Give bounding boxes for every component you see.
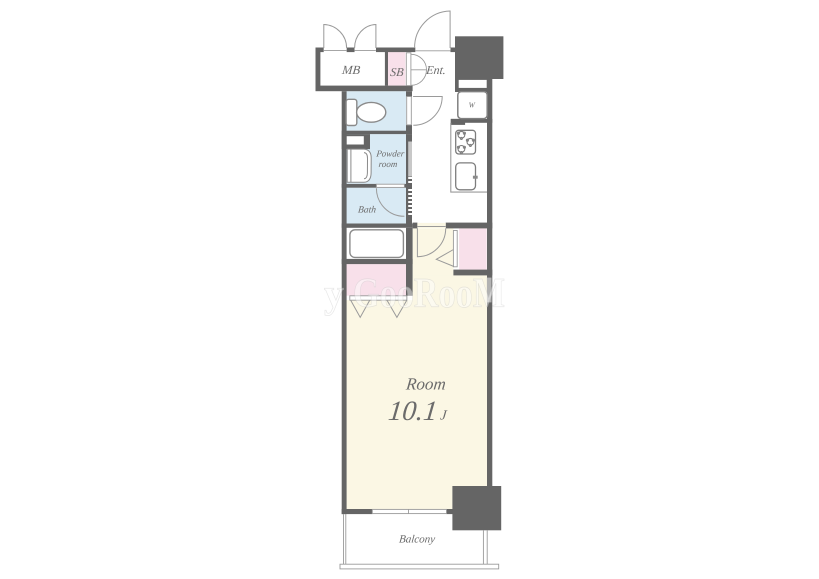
svg-text:SB: SB xyxy=(390,65,405,79)
svg-text:Powder: Powder xyxy=(375,149,406,159)
svg-text:Room: Room xyxy=(404,375,447,394)
svg-text:Ent.: Ent. xyxy=(425,63,447,77)
svg-text:Bath: Bath xyxy=(357,206,376,216)
svg-text:room: room xyxy=(378,159,398,169)
svg-text:10.1: 10.1 xyxy=(387,396,439,427)
svg-text:MB: MB xyxy=(340,63,361,77)
svg-text:W: W xyxy=(469,101,476,110)
svg-text:y: y xyxy=(324,271,344,316)
svg-text:GooRooM: GooRooM xyxy=(353,271,505,317)
svg-text:Balcony: Balcony xyxy=(398,534,435,546)
